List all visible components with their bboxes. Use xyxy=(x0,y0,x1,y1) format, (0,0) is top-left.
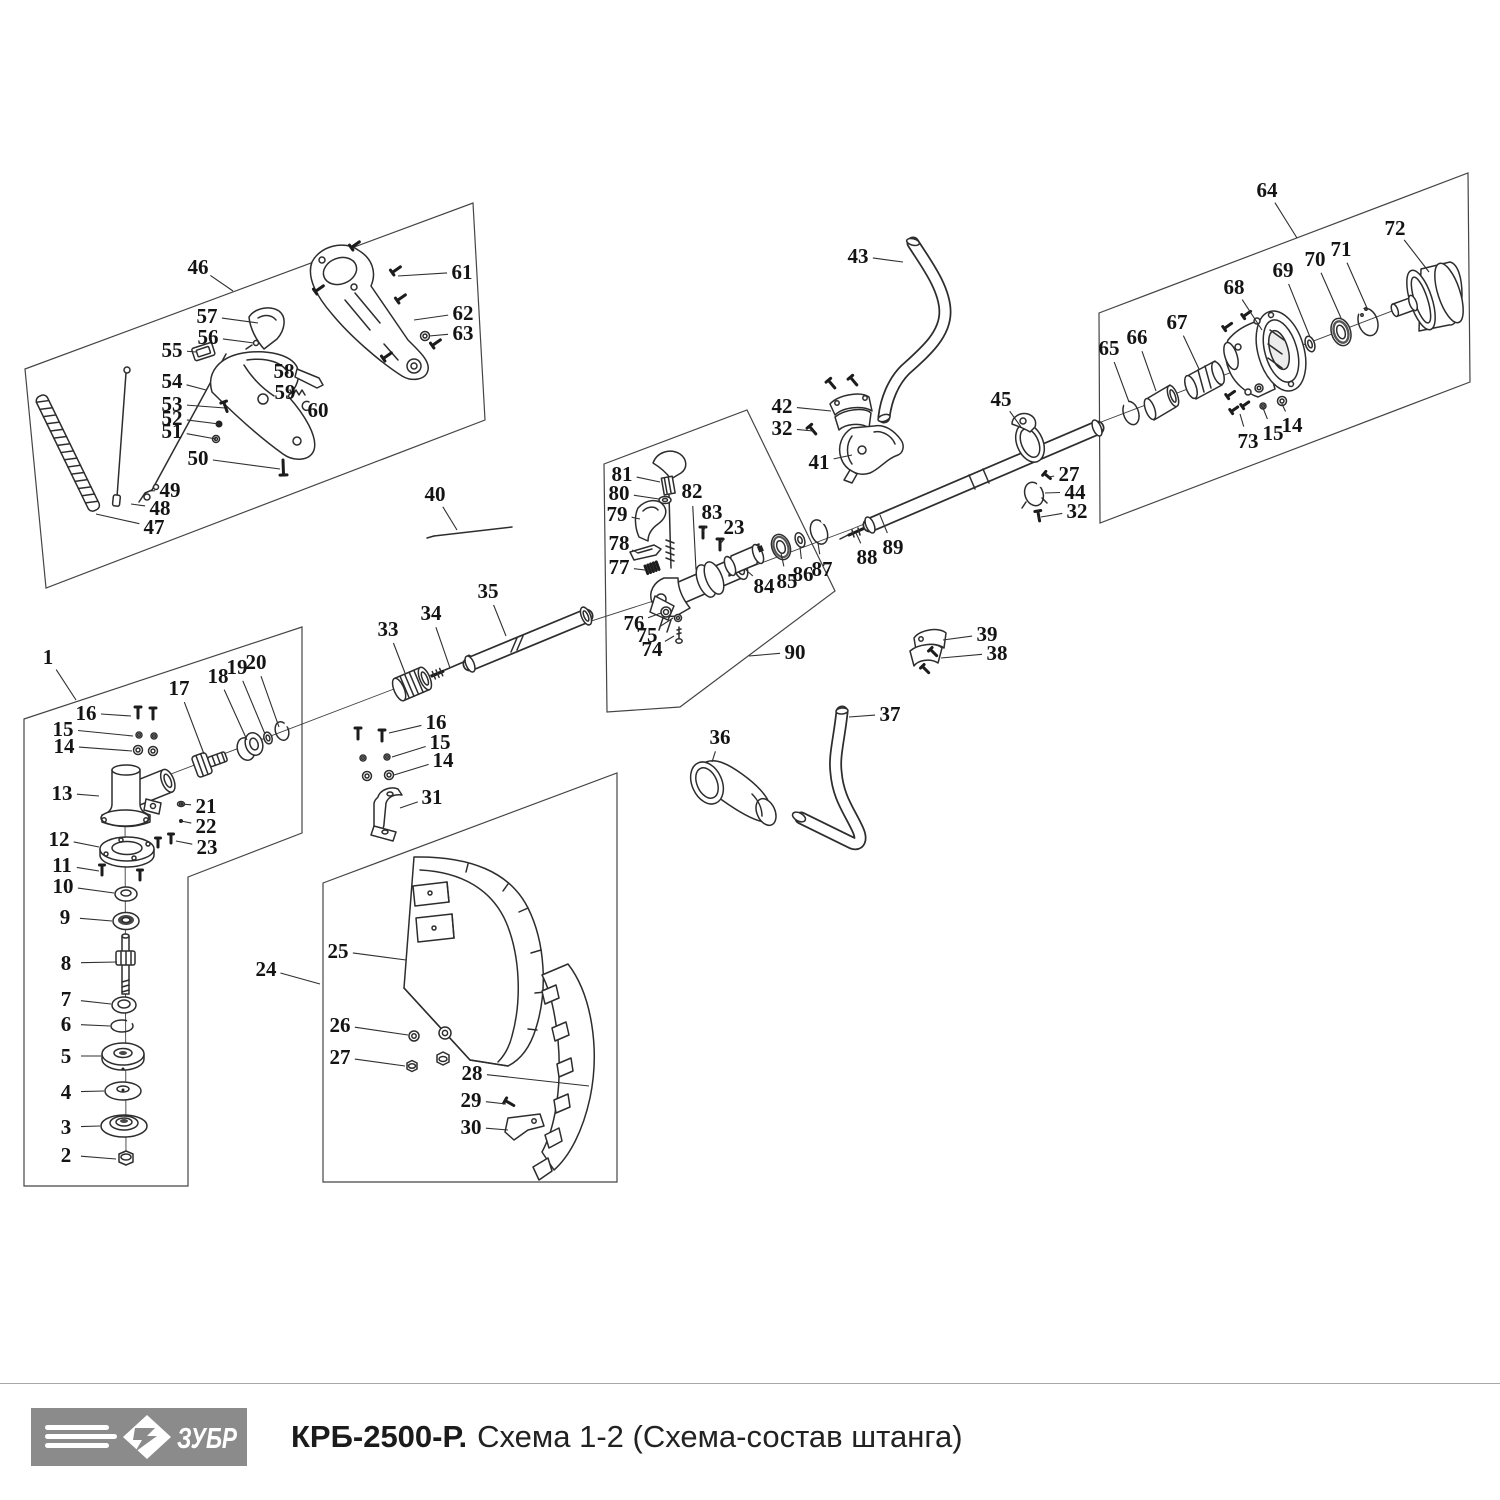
leader-86 xyxy=(800,547,801,559)
part-42-clamp-upper xyxy=(830,394,872,430)
callout-8: 8 xyxy=(61,951,72,975)
callout-41: 41 xyxy=(809,450,830,474)
part-18-bearing xyxy=(234,730,265,762)
part-23-screw-center xyxy=(717,539,723,550)
part-67-sleeve xyxy=(1182,360,1227,400)
part-27-screw-clamp xyxy=(1043,471,1052,480)
part-71-circlip xyxy=(1355,306,1382,339)
part-66-bushing xyxy=(1142,384,1181,421)
part-50-bolt xyxy=(280,460,288,475)
callout-65: 65 xyxy=(1099,336,1120,360)
callout-17: 17 xyxy=(169,676,190,700)
leader-17 xyxy=(184,702,204,754)
callout-56: 56 xyxy=(198,325,219,349)
callout-88: 88 xyxy=(857,545,878,569)
leader-62 xyxy=(414,315,448,320)
part-26-washers xyxy=(409,1027,451,1041)
callout-36: 36 xyxy=(710,725,731,749)
leader-4 xyxy=(81,1091,104,1092)
leader-80 xyxy=(634,495,659,499)
part-14-washers xyxy=(134,746,158,756)
callout-5: 5 xyxy=(61,1044,72,1068)
part-9-bearing xyxy=(113,913,139,930)
part-44-clamp-ring xyxy=(1021,480,1047,509)
leader-51 xyxy=(187,434,216,439)
part-39-trigger-clamp xyxy=(910,630,946,666)
callout-37: 37 xyxy=(880,702,901,726)
leader-16 xyxy=(101,714,131,716)
callout-35: 35 xyxy=(478,579,499,603)
callout-18: 18 xyxy=(208,664,229,688)
leader-6 xyxy=(81,1025,110,1026)
leader-7 xyxy=(81,1001,111,1004)
leader-66 xyxy=(1142,351,1156,391)
callout-34: 34 xyxy=(421,601,443,625)
leader-16 xyxy=(389,725,421,733)
leader-70 xyxy=(1321,273,1341,318)
logo-speed-bars-icon xyxy=(45,1425,117,1448)
callout-84: 84 xyxy=(754,574,776,598)
assembly-box-coupler-assembly-90 xyxy=(604,410,835,712)
part-7-bearing xyxy=(112,997,136,1013)
callout-77: 77 xyxy=(609,555,630,579)
part-37-j-handle xyxy=(791,708,860,844)
callout-2: 2 xyxy=(61,1143,72,1167)
callout-71: 71 xyxy=(1331,237,1352,261)
logo-diamond-arrow-icon xyxy=(123,1415,171,1459)
leader-37 xyxy=(849,715,875,717)
part-8-shaft xyxy=(116,934,135,994)
part-47-return-spring xyxy=(35,393,101,512)
part-31-bracket xyxy=(371,788,402,841)
callout-14: 14 xyxy=(433,748,455,772)
exploded-diagram: 4661576256635558545960535251504948474011… xyxy=(0,0,1500,1383)
leader-42 xyxy=(797,408,831,411)
callout-9: 9 xyxy=(60,905,71,929)
part-30-knife xyxy=(505,1114,544,1140)
part-75-washer xyxy=(675,615,682,622)
part-3-holder-cup xyxy=(101,1115,147,1137)
part-41-clamp-bracket xyxy=(840,426,904,483)
callout-87: 87 xyxy=(812,557,833,581)
part-32-screw-lower xyxy=(1035,510,1043,521)
callout-32: 32 xyxy=(772,416,793,440)
callout-27: 27 xyxy=(330,1045,351,1069)
callout-67: 67 xyxy=(1167,310,1188,334)
leader-47 xyxy=(96,514,139,524)
leader-50 xyxy=(213,460,280,469)
leader-27 xyxy=(355,1059,405,1066)
leader-13 xyxy=(77,794,99,796)
leader-65 xyxy=(1114,362,1129,402)
leader-11 xyxy=(77,867,99,871)
callout-38: 38 xyxy=(987,641,1008,665)
leader-56 xyxy=(223,339,254,343)
part-17-pinion xyxy=(191,746,230,778)
part-36-foam-grip xyxy=(684,757,780,829)
leader-71 xyxy=(1347,263,1367,308)
leader-54 xyxy=(187,385,206,390)
callout-73: 73 xyxy=(1238,429,1259,453)
callout-66: 66 xyxy=(1127,325,1148,349)
callout-25: 25 xyxy=(328,939,349,963)
leader-30 xyxy=(486,1128,508,1130)
leader-34 xyxy=(436,627,450,668)
part-77-spring xyxy=(645,562,659,574)
part-76-nut xyxy=(661,607,671,617)
leader-73 xyxy=(1240,414,1244,427)
callout-45: 45 xyxy=(991,387,1012,411)
callout-30: 30 xyxy=(461,1115,482,1139)
leader-10 xyxy=(78,888,114,893)
callout-70: 70 xyxy=(1305,247,1326,271)
callout-89: 89 xyxy=(883,535,904,559)
leader-74 xyxy=(665,636,674,641)
leader-14 xyxy=(79,747,132,751)
leader-31 xyxy=(400,802,418,808)
callout-23: 23 xyxy=(724,515,745,539)
callout-69: 69 xyxy=(1273,258,1294,282)
leader-23 xyxy=(176,841,192,844)
leader-12 xyxy=(74,842,99,847)
part-63-nut xyxy=(421,332,430,341)
leader-20 xyxy=(261,676,279,727)
footer-title: КРБ-2500-Р. Схема 1-2 (Схема-состав штан… xyxy=(291,1414,963,1460)
parts-diagram-page: 4661576256635558545960535251504948474011… xyxy=(0,0,1500,1500)
leader-67 xyxy=(1183,336,1199,369)
part-16-screws xyxy=(135,707,156,719)
leader-63 xyxy=(429,334,448,336)
leader-87 xyxy=(818,543,820,554)
part-79-latch-hook xyxy=(635,501,665,541)
callout-63: 63 xyxy=(453,321,474,345)
leader-90 xyxy=(749,653,780,656)
part-10-washer xyxy=(115,887,137,901)
leader-38 xyxy=(941,654,982,658)
part-74-screw xyxy=(676,627,682,643)
leader-39 xyxy=(943,636,972,640)
callout-33: 33 xyxy=(378,617,399,641)
leader-9 xyxy=(80,918,112,921)
callout-83: 83 xyxy=(702,500,723,524)
callout-74: 74 xyxy=(642,637,664,661)
leader-35 xyxy=(494,605,506,636)
leader-24 xyxy=(280,973,320,984)
part-14-washers-mid xyxy=(363,771,394,781)
part-2-nut xyxy=(119,1151,133,1165)
callout-32: 32 xyxy=(1067,499,1088,523)
leader-48 xyxy=(131,504,145,506)
leader-81 xyxy=(637,477,660,482)
callout-3: 3 xyxy=(61,1115,72,1139)
scheme-label: Схема 1-2 (Схема-состав штанга) xyxy=(477,1419,962,1455)
leader-15 xyxy=(78,730,133,736)
part-33-coupler-nut xyxy=(390,666,434,703)
callout-68: 68 xyxy=(1224,275,1245,299)
callout-7: 7 xyxy=(61,987,72,1011)
leader-40 xyxy=(443,507,457,530)
part-15-washers xyxy=(136,732,157,739)
part-16-screws-mid xyxy=(355,728,385,741)
callout-13: 13 xyxy=(52,781,73,805)
callout-14: 14 xyxy=(1282,413,1304,437)
part-78-clip-plate xyxy=(630,545,661,560)
callout-59: 59 xyxy=(275,380,296,404)
leader-3 xyxy=(81,1126,100,1127)
part-70-bearing xyxy=(1328,316,1355,349)
callout-4: 4 xyxy=(61,1080,72,1104)
part-68-clutch-housing xyxy=(1221,305,1314,397)
part-40-rod xyxy=(427,527,512,538)
leader-2 xyxy=(81,1156,116,1159)
callout-16: 16 xyxy=(76,701,97,725)
footer-divider xyxy=(0,1383,1500,1384)
leader-1 xyxy=(56,670,76,700)
leader-44 xyxy=(1045,492,1060,493)
part-19-washer xyxy=(262,731,273,745)
leader-61 xyxy=(398,273,447,276)
callout-10: 10 xyxy=(53,874,74,898)
leader-72 xyxy=(1404,240,1429,272)
leader-33 xyxy=(393,643,405,673)
part-25-guard xyxy=(404,857,545,1066)
callout-72: 72 xyxy=(1385,216,1406,240)
part-72-clutch-drum xyxy=(1390,260,1469,333)
leader-19 xyxy=(243,681,265,734)
callout-43: 43 xyxy=(848,244,869,268)
callout-26: 26 xyxy=(330,1013,351,1037)
callout-19: 19 xyxy=(227,655,248,679)
callout-6: 6 xyxy=(61,1012,72,1036)
callout-82: 82 xyxy=(682,479,703,503)
callout-50: 50 xyxy=(188,446,209,470)
leader-14 xyxy=(394,764,429,775)
callout-23: 23 xyxy=(197,835,218,859)
part-65-ring xyxy=(1120,399,1142,426)
leader-64 xyxy=(1275,203,1297,238)
leader-8 xyxy=(81,962,117,963)
part-6-circlip xyxy=(111,1018,133,1032)
part-43-handlebar xyxy=(877,237,945,423)
callout-64: 64 xyxy=(1257,178,1279,202)
callout-20: 20 xyxy=(246,650,267,674)
callout-1: 1 xyxy=(43,645,54,669)
callout-42: 42 xyxy=(772,394,793,418)
callout-86: 86 xyxy=(793,562,814,586)
leader-52 xyxy=(187,420,219,424)
leader-32 xyxy=(1041,513,1062,517)
callout-31: 31 xyxy=(422,785,443,809)
leader-25 xyxy=(353,953,406,960)
leader-46 xyxy=(210,275,233,291)
callout-12: 12 xyxy=(49,827,70,851)
part-20-circlip xyxy=(273,720,291,742)
leader-43 xyxy=(873,258,903,262)
part-23-screws xyxy=(156,834,174,847)
callout-51: 51 xyxy=(162,419,183,443)
callout-40: 40 xyxy=(425,482,446,506)
leader-77 xyxy=(634,569,645,570)
leader-53 xyxy=(187,405,225,408)
parts-layer xyxy=(35,237,1469,1180)
callout-61: 61 xyxy=(452,260,473,284)
part-62-housing-half xyxy=(310,245,428,379)
part-29-screw xyxy=(504,1098,516,1108)
leader-18 xyxy=(224,690,247,740)
leader-15 xyxy=(392,746,426,757)
callout-46: 46 xyxy=(188,255,209,279)
callout-54: 54 xyxy=(162,369,184,393)
part-35-drive-tube xyxy=(463,605,594,673)
part-85-bearing xyxy=(768,532,794,563)
part-4-washer-disc xyxy=(105,1082,141,1100)
callout-60: 60 xyxy=(308,398,329,422)
leader-15 xyxy=(1263,408,1267,419)
brand-name: ЗУБР xyxy=(177,1423,238,1455)
part-15-washers-mid xyxy=(360,754,390,761)
part-12-flange xyxy=(100,837,154,867)
callout-15: 15 xyxy=(1263,421,1284,445)
callout-55: 55 xyxy=(162,338,183,362)
callout-79: 79 xyxy=(607,502,628,526)
model-label: КРБ-2500-Р. xyxy=(291,1419,467,1455)
leader-82 xyxy=(693,506,696,570)
brand-logo-graphic: ЗУБР xyxy=(31,1408,247,1466)
callout-24: 24 xyxy=(256,957,278,981)
part-27-nuts xyxy=(407,1052,449,1072)
callout-47: 47 xyxy=(144,515,165,539)
part-48-throttle-cable xyxy=(112,367,130,506)
callout-90: 90 xyxy=(785,640,806,664)
callout-78: 78 xyxy=(609,531,630,555)
leader-55 xyxy=(187,351,196,352)
callout-29: 29 xyxy=(461,1088,482,1112)
part-86-washer xyxy=(793,531,807,548)
callout-28: 28 xyxy=(462,1061,483,1085)
brand-logo: ЗУБР xyxy=(31,1408,247,1466)
part-58-lever xyxy=(295,369,323,388)
callout-14: 14 xyxy=(54,734,76,758)
part-5-blade-holder xyxy=(102,1043,144,1071)
leader-26 xyxy=(355,1027,408,1035)
part-13-gearhead xyxy=(101,765,178,827)
